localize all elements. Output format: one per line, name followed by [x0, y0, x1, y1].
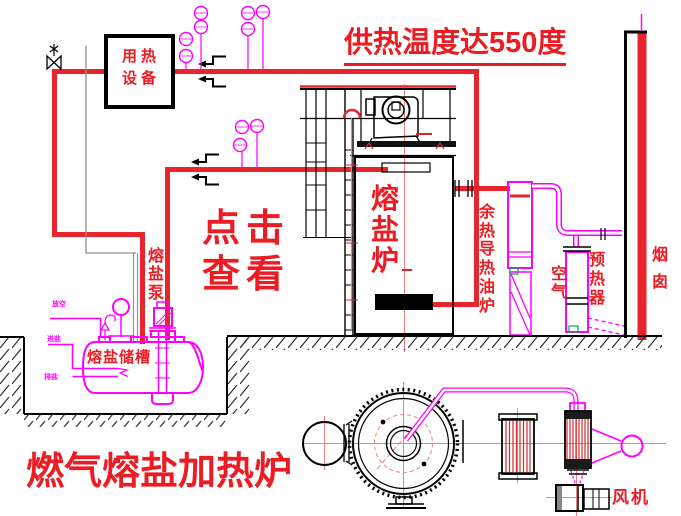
- diagram-canvas: [0, 0, 681, 516]
- fan-label: 风机: [612, 488, 650, 508]
- heat-equipment-label: 用热设备: [118, 46, 164, 90]
- temperature-note: 供热温度达550度: [344, 26, 566, 66]
- salt-tank-label: 熔盐储槽: [87, 349, 151, 367]
- tank-nozzle-label-vent: 放空: [52, 299, 66, 309]
- preheater-label: 预热器: [589, 251, 606, 309]
- burner-block: [375, 294, 433, 310]
- salt-furnace-label: 熔盐炉: [371, 184, 401, 276]
- click-view-hotspot[interactable]: 点击查看: [202, 206, 298, 299]
- chimney-label: 烟囱: [652, 242, 669, 296]
- flow-arrow-icons: [191, 57, 226, 185]
- air-label: 空气: [551, 266, 568, 303]
- oil-furnace-label: 余热导热油炉: [479, 204, 496, 316]
- salt-pump-label: 熔盐泵: [148, 248, 165, 303]
- plan-view-drawing: [303, 390, 643, 512]
- oil-furnace-preheater-drawing: [508, 182, 624, 335]
- diagram-page: 供热温度达550度 用热设备 点击查看 熔盐炉 熔盐泵 熔盐储槽 余热导热油炉 …: [0, 0, 681, 516]
- tank-nozzle-label-inlet: 进盐: [47, 334, 61, 344]
- valve-icon: [47, 44, 61, 69]
- page-title: 燃气熔盐加热炉: [26, 450, 292, 496]
- tank-nozzle-label-drain: 排盐: [44, 372, 58, 382]
